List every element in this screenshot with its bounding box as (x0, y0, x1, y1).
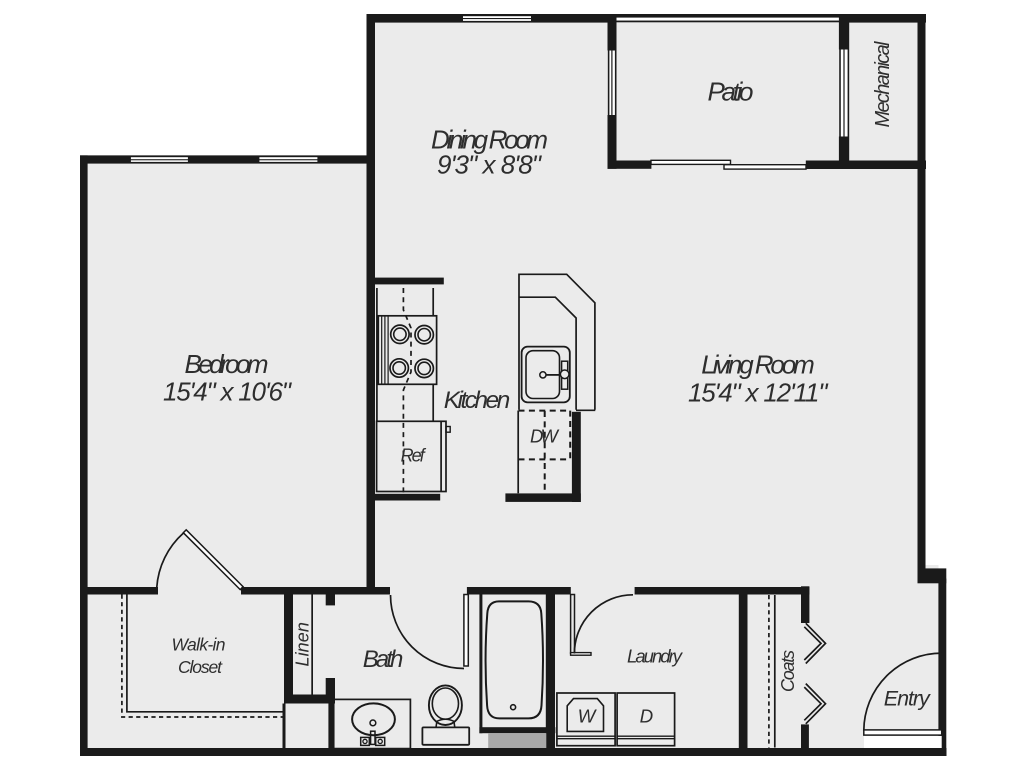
svg-text:DW: DW (530, 426, 560, 447)
svg-text:15'4" x 10'6": 15'4" x 10'6" (163, 377, 293, 407)
svg-text:D: D (640, 705, 654, 726)
svg-text:Patio: Patio (708, 77, 754, 107)
svg-text:Living Room: Living Room (701, 350, 815, 380)
svg-text:Linen: Linen (293, 622, 313, 667)
svg-text:9'3" x 8'8": 9'3" x 8'8" (437, 150, 543, 180)
svg-text:Walk-in: Walk-in (172, 635, 226, 655)
svg-text:Ref: Ref (401, 446, 427, 466)
svg-text:Closet: Closet (178, 657, 223, 677)
svg-text:Coats: Coats (778, 650, 798, 692)
svg-text:Mechanical: Mechanical (872, 41, 894, 128)
svg-text:Bedroom: Bedroom (185, 349, 269, 379)
svg-text:15'4" x 12'11": 15'4" x 12'11" (688, 378, 829, 408)
svg-text:Entry: Entry (884, 687, 931, 711)
svg-text:Bath: Bath (363, 646, 404, 673)
svg-text:Kitchen: Kitchen (444, 387, 511, 414)
svg-text:Laundry: Laundry (627, 646, 684, 667)
svg-text:W: W (578, 705, 598, 726)
